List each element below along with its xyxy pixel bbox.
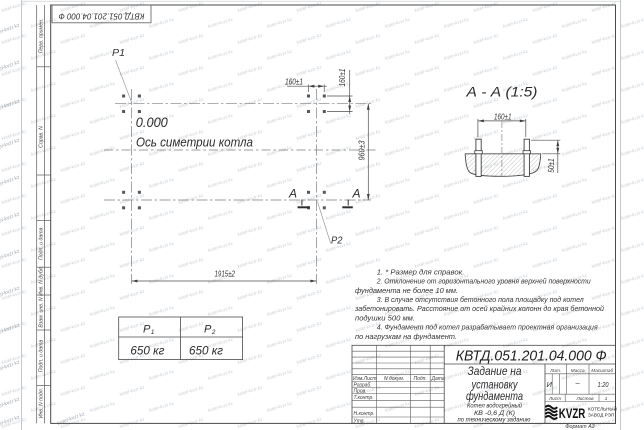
svg-text:Инв. N дубл.: Инв. N дубл.: [39, 266, 45, 296]
svg-text:Инв. N подл.: Инв. N подл.: [39, 388, 45, 418]
svg-text:–: –: [575, 379, 581, 388]
svg-text:Изм.Лист: Изм.Лист: [353, 376, 377, 382]
svg-text:1. * Размер для справок.: 1. * Размер для справок.: [377, 267, 465, 276]
svg-text:1915±2: 1915±2: [215, 270, 236, 279]
svg-text:650 кг: 650 кг: [130, 343, 164, 357]
svg-text:160±1: 160±1: [494, 113, 512, 122]
svg-text:А - А (1:5): А - А (1:5): [465, 84, 537, 100]
svg-text:650 кг: 650 кг: [189, 343, 223, 357]
svg-text:Н.контр.: Н.контр.: [354, 411, 375, 417]
svg-text:1: 1: [151, 329, 155, 336]
svg-text:1: 1: [605, 396, 608, 401]
svg-text:Перв. примен.: Перв. примен.: [39, 19, 45, 53]
svg-text:КОТЕЛЬНЫЙ: КОТЕЛЬНЫЙ: [588, 405, 617, 412]
svg-text:Взам. инв. N: Взам. инв. N: [39, 297, 45, 327]
svg-text:фундамента: фундамента: [466, 389, 523, 403]
svg-text:Лит.: Лит.: [549, 368, 561, 373]
svg-text:Т.контр.: Т.контр.: [354, 395, 374, 401]
svg-text:по нагрузкам на фундамент.: по нагрузкам на фундамент.: [355, 332, 457, 341]
svg-text:КВТД.051.201.04.000 Ф: КВТД.051.201.04.000 Ф: [58, 12, 144, 22]
svg-text:0.000: 0.000: [136, 114, 168, 130]
svg-text:фундамента не более 10 мм.: фундамента не более 10 мм.: [355, 286, 458, 295]
svg-text:И: И: [547, 380, 553, 389]
svg-text:А: А: [352, 187, 361, 201]
svg-text:забетонировать. Расстояние от: забетонировать. Расстояние от осей крайн…: [354, 304, 605, 313]
svg-text:ЗАВОД РЭП: ЗАВОД РЭП: [588, 413, 614, 418]
svg-text:Масштаб: Масштаб: [591, 368, 613, 373]
svg-text:по техническому заданию: по техническому заданию: [458, 417, 531, 424]
svg-text:P1: P1: [112, 47, 125, 59]
svg-text:Дата: Дата: [431, 376, 445, 382]
svg-text:Подп. и дата: Подп. и дата: [39, 227, 45, 260]
svg-text:1:20: 1:20: [598, 380, 610, 389]
svg-text:160±1: 160±1: [285, 78, 303, 87]
svg-text:3. В случае отсутствия бетонно: 3. В случае отсутствия бетонного пола пл…: [377, 295, 585, 304]
svg-text:P: P: [204, 324, 212, 336]
svg-text:P2: P2: [331, 235, 343, 247]
svg-text:Формат А3: Формат А3: [565, 424, 595, 430]
svg-text:2. Отклонение от горизонтально: 2. Отклонение от горизонтального уровня …: [376, 277, 592, 286]
svg-text:КВТД.051.201.04.000 Ф: КВТД.051.201.04.000 Ф: [456, 347, 607, 364]
svg-text:Утв.: Утв.: [354, 418, 365, 424]
svg-text:Лист: Лист: [548, 396, 561, 401]
svg-text:Ось симетрии котла: Ось симетрии котла: [136, 136, 253, 150]
svg-text:подушки 500 мм.: подушки 500 мм.: [355, 313, 415, 322]
svg-text:P: P: [143, 324, 151, 336]
svg-text:Подп. и дата: Подп. и дата: [39, 340, 45, 373]
svg-text:50±1: 50±1: [547, 158, 556, 173]
svg-text:А: А: [288, 187, 297, 201]
svg-text:Котел водогрейный: Котел водогрейный: [467, 403, 523, 410]
svg-text:Масса: Масса: [571, 368, 585, 373]
svg-text:Листов: Листов: [575, 396, 594, 401]
svg-text:Подп.: Подп.: [414, 376, 427, 382]
svg-text:960±3: 960±3: [358, 140, 367, 160]
svg-text:KVZR: KVZR: [559, 405, 586, 421]
svg-text:2: 2: [211, 329, 216, 336]
svg-text:160±1: 160±1: [338, 69, 347, 87]
svg-text:4. Фундамент под котел разраба: 4. Фундамент под котел разрабатывает про…: [377, 323, 598, 332]
svg-text:Справ. N: Справ. N: [39, 126, 45, 148]
svg-text:Задание на: Задание на: [468, 364, 522, 378]
svg-text:N докум.: N докум.: [384, 376, 404, 382]
svg-text:Пров.: Пров.: [354, 389, 367, 395]
